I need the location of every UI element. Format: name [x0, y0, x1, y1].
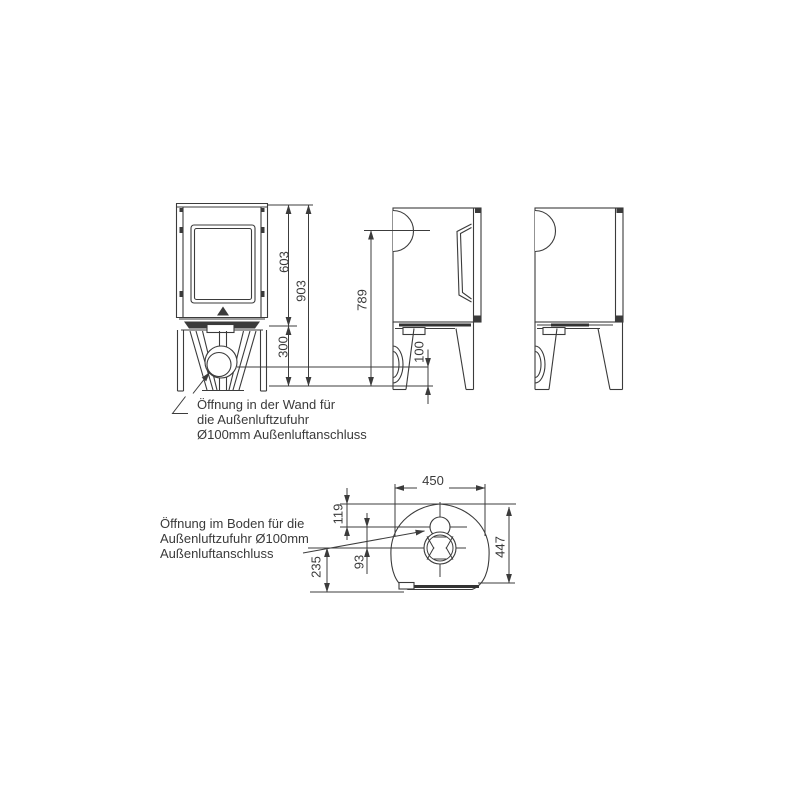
- dim-label-903: 903: [294, 280, 309, 302]
- door-profile-recess: [457, 224, 472, 302]
- floor-note-line-1: Öffnung im Boden für die: [160, 516, 304, 531]
- hinge-mark: [180, 227, 184, 233]
- hinge-mark: [261, 291, 265, 297]
- side-view-right: [535, 208, 623, 390]
- brand-flame-logo: [217, 307, 229, 316]
- dim-label-603: 603: [277, 251, 292, 273]
- wall-note-line-2: die Außenluftzufuhr: [197, 412, 310, 427]
- air-inlet-pipe-front: [207, 353, 231, 377]
- floor-opening-note: Öffnung im Boden für die Außenluftzufuhr…: [160, 516, 309, 561]
- wall-opening-note: Öffnung in der Wand für die Außenluftzuf…: [197, 397, 367, 442]
- dim-label-93: 93: [352, 555, 367, 569]
- wall-note-line-3: Ø100mm Außenluftanschluss: [197, 427, 367, 442]
- dim-label-119: 119: [331, 504, 346, 525]
- base-notch: [543, 328, 565, 335]
- front-view: [176, 204, 268, 392]
- wall-note-line-1: Öffnung in der Wand für: [197, 397, 336, 412]
- side-view-left: [393, 208, 481, 390]
- front-notch: [399, 583, 414, 590]
- wall-note-leader-hook: [173, 397, 189, 414]
- flue-outlet-rear: [535, 211, 556, 252]
- dim-label-789: 789: [355, 289, 370, 311]
- dimension-annotations-bottom: 450 447 119 93 235: [309, 473, 516, 592]
- hinge-mark: [180, 208, 184, 212]
- dim-label-300: 300: [276, 336, 291, 358]
- floor-note-line-3: Außenluftanschluss: [160, 546, 274, 561]
- stove-dimension-drawing: 603 903 300 789 100 450 447 119 93 235: [0, 0, 800, 800]
- floor-note-leader: [303, 531, 425, 553]
- stove-door-window: [191, 225, 255, 303]
- dim-label-100: 100: [412, 341, 427, 363]
- dim-label-450: 450: [422, 473, 444, 488]
- base-notch: [207, 325, 234, 333]
- dim-label-235: 235: [309, 556, 324, 578]
- hinge-mark: [180, 291, 184, 297]
- floor-note-line-2: Außenluftzufuhr Ø100mm: [160, 531, 309, 546]
- dim-label-447: 447: [493, 536, 508, 558]
- technical-drawing-page: 603 903 300 789 100 450 447 119 93 235: [0, 0, 800, 800]
- hinge-mark: [261, 227, 265, 233]
- hinge-mark: [261, 208, 265, 212]
